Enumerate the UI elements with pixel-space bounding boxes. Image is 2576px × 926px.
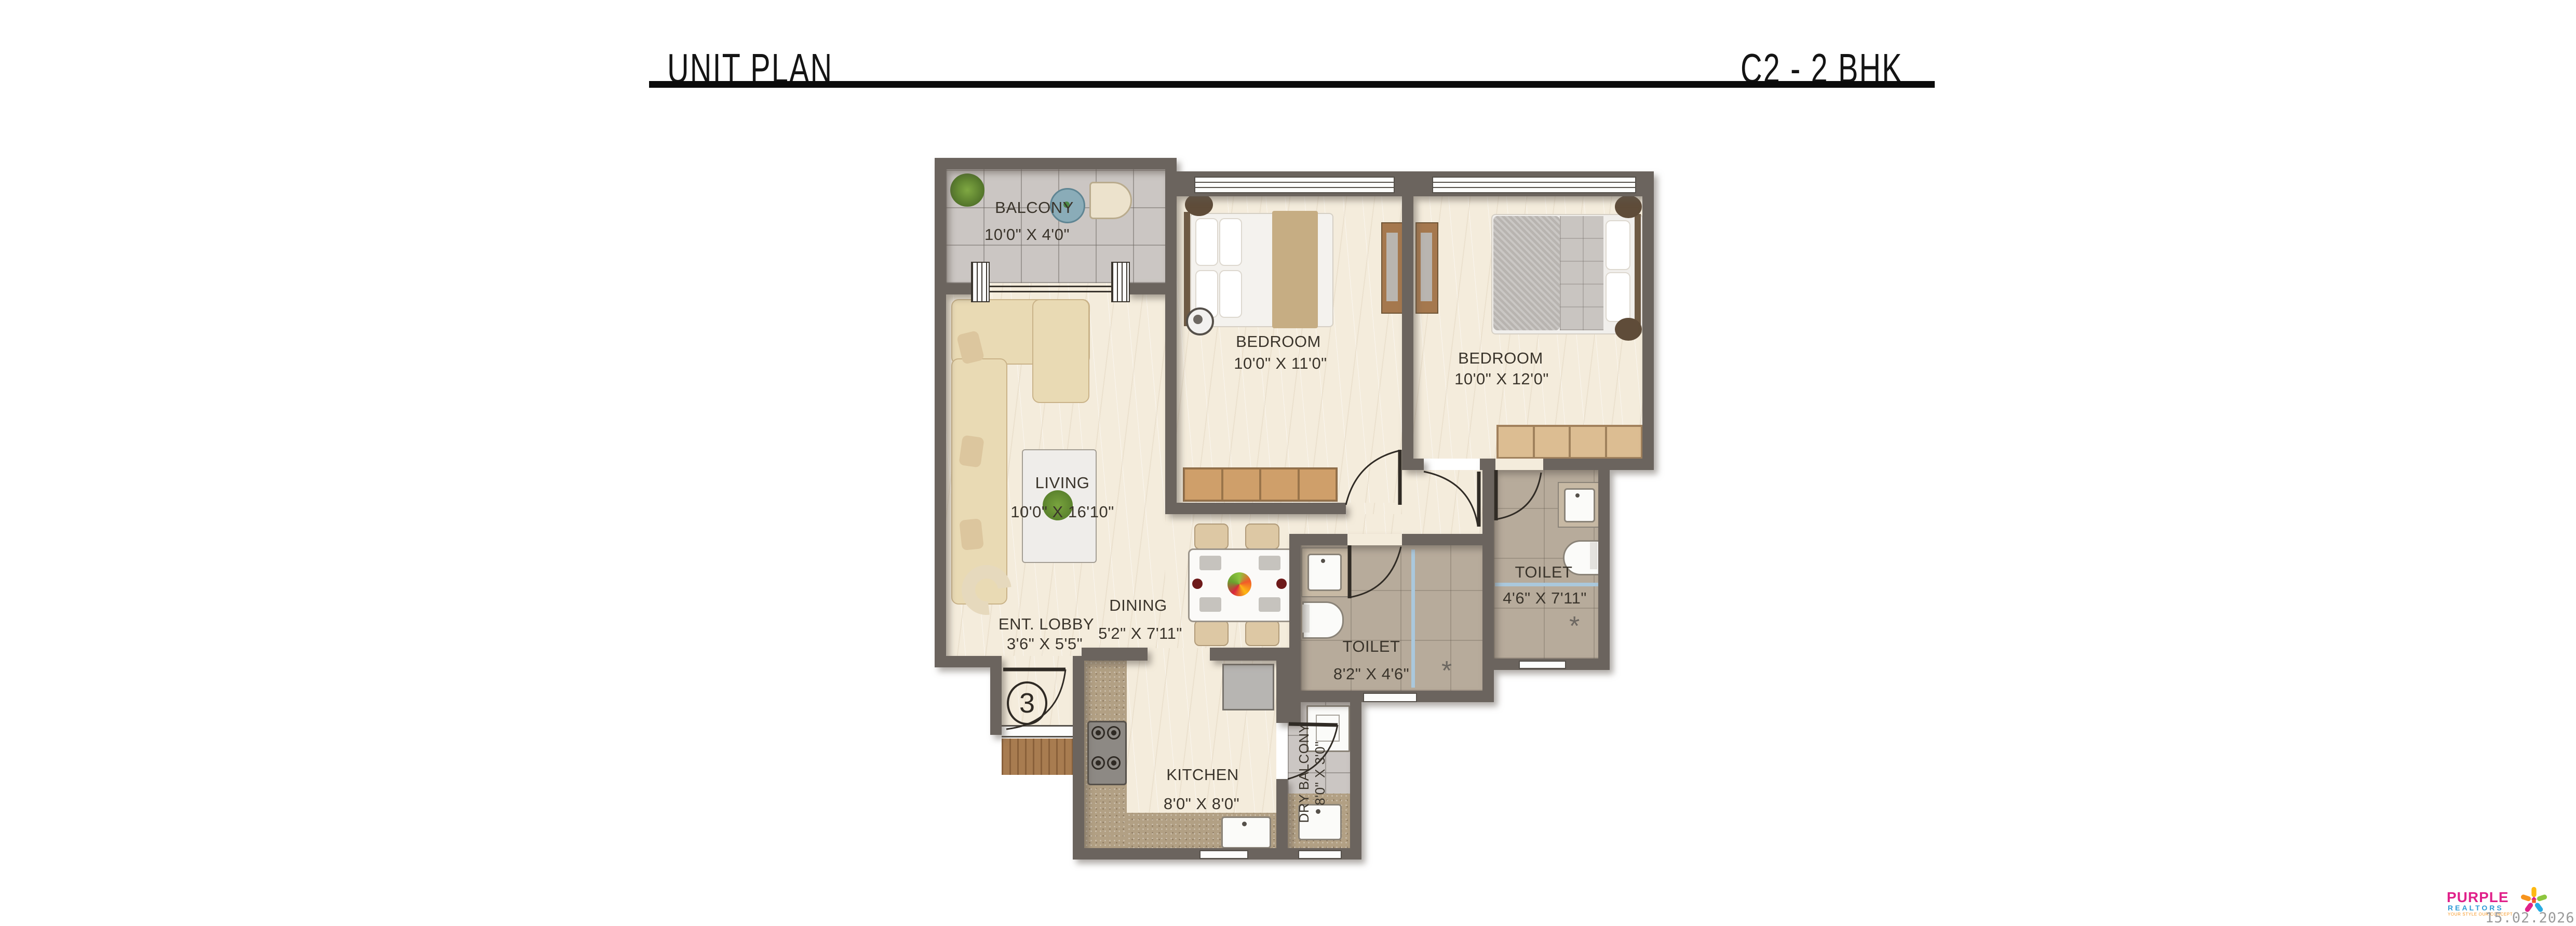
room-name-label: TOILET [1343, 637, 1400, 656]
room-dims-label: 8'2" X 4'6" [1333, 665, 1409, 683]
room-dims-label: 10'0" X 11'0" [1234, 354, 1327, 373]
room-dims-label: 5'2" X 7'11" [1098, 624, 1182, 643]
dry-balcony-label: DRY BALCONY 8'0" X 3'0" [1296, 703, 1328, 843]
room-name-label: LIVING [1035, 474, 1090, 492]
room-name-label: BEDROOM [1458, 349, 1543, 368]
room-dims-label: 3'6" X 5'5" [1007, 635, 1083, 653]
room-name-label: ENT. LOBBY [999, 615, 1094, 634]
room-dims-label: 10'0" X 12'0" [1454, 370, 1549, 388]
room-dims-label: 10'0" X 16'10" [1010, 503, 1114, 521]
room-name-label: DRY BALCONY [1296, 703, 1312, 843]
room-dims-label: 4'6" X 7'11" [1503, 589, 1587, 608]
room-name-label: BEDROOM [1236, 332, 1321, 351]
room-name-label: BALCONY [995, 198, 1074, 217]
room-name-label: TOILET [1515, 563, 1573, 582]
unit-number-badge: 3 [1007, 681, 1047, 725]
room-dims-label: 10'0" X 4'0" [984, 225, 1070, 244]
room-dims-label: 8'0" X 3'0" [1312, 703, 1328, 843]
room-dims-label: 8'0" X 8'0" [1164, 795, 1239, 813]
room-name-label: KITCHEN [1166, 766, 1239, 784]
room-name-label: DINING [1109, 596, 1167, 615]
floor-plan-page: UNIT PLAN C2 - 2 BHK [0, 0, 2576, 926]
